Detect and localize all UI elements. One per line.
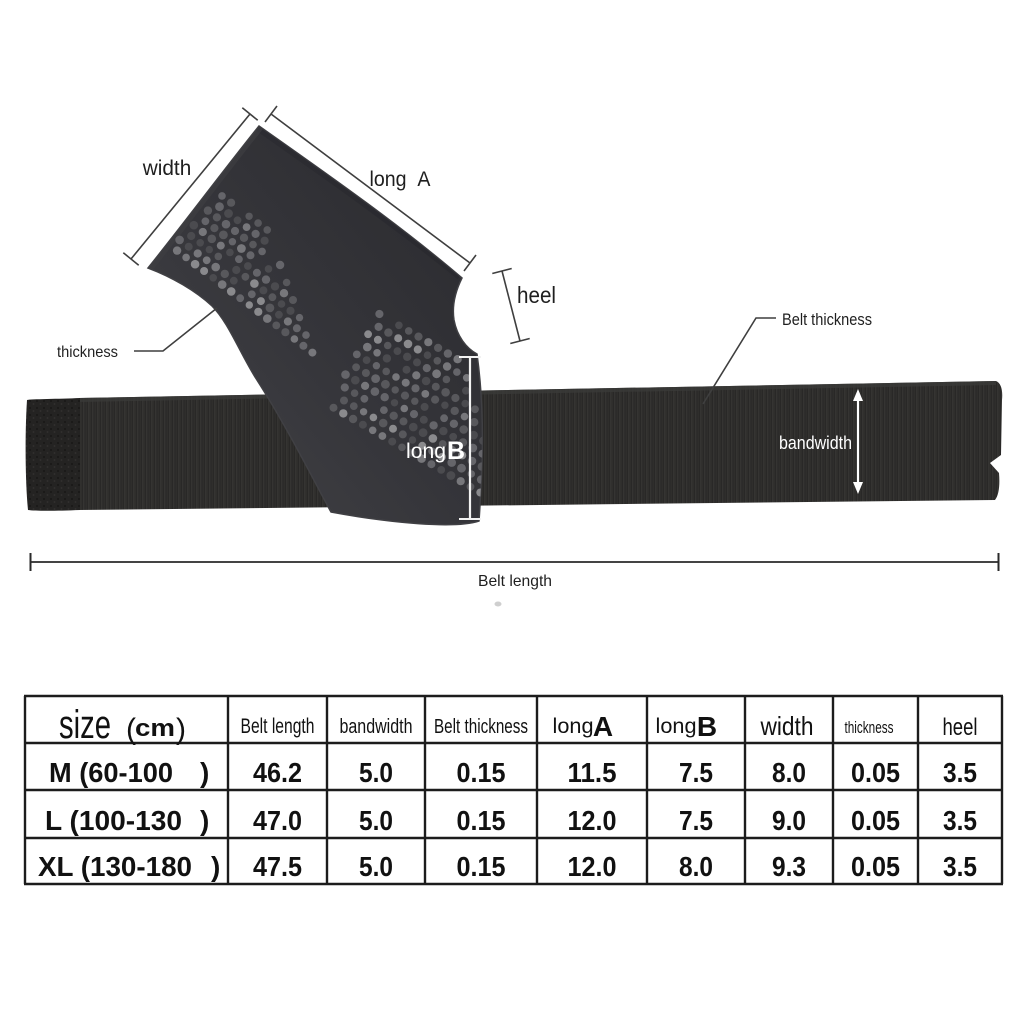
- svg-text:thickness: thickness: [845, 718, 894, 737]
- svg-text:9.3: 9.3: [772, 851, 806, 882]
- svg-text:bandwidth: bandwidth: [779, 433, 852, 453]
- svg-text:B: B: [697, 711, 717, 742]
- svg-text:3.5: 3.5: [943, 805, 977, 836]
- svg-text:0.15: 0.15: [457, 805, 506, 836]
- svg-text:0.05: 0.05: [851, 805, 900, 836]
- svg-text:heel: heel: [517, 282, 556, 308]
- svg-text:cm: cm: [135, 715, 175, 742]
- svg-text:7.5: 7.5: [679, 757, 713, 788]
- svg-text:Belt thickness: Belt thickness: [782, 310, 872, 329]
- svg-text:47.0: 47.0: [253, 805, 302, 836]
- svg-text:long: long: [656, 715, 697, 738]
- svg-text:0.05: 0.05: [851, 851, 900, 882]
- svg-text:long A: long A: [370, 168, 431, 191]
- svg-text:A: A: [593, 711, 613, 742]
- svg-text:): ): [200, 805, 209, 836]
- svg-text:long: long: [406, 440, 446, 463]
- svg-text:L (100-130: L (100-130: [45, 805, 182, 836]
- svg-text:): ): [211, 851, 220, 882]
- svg-text:47.5: 47.5: [253, 851, 302, 882]
- svg-text:5.0: 5.0: [359, 805, 393, 836]
- svg-text:Belt thickness: Belt thickness: [434, 716, 528, 738]
- svg-text:size: size: [59, 703, 111, 747]
- svg-text:long: long: [553, 715, 594, 738]
- svg-text:Belt length: Belt length: [478, 573, 552, 590]
- svg-text:3.5: 3.5: [943, 851, 977, 882]
- svg-text:9.0: 9.0: [772, 805, 806, 836]
- svg-text:bandwidth: bandwidth: [340, 716, 413, 738]
- svg-text:3.5: 3.5: [943, 757, 977, 788]
- svg-text:): ): [176, 713, 186, 746]
- svg-text:7.5: 7.5: [679, 805, 713, 836]
- svg-text:M (60-100: M (60-100: [49, 757, 173, 788]
- svg-text:): ): [200, 757, 209, 788]
- svg-text:8.0: 8.0: [772, 757, 806, 788]
- svg-text:B: B: [447, 437, 465, 465]
- svg-text:heel: heel: [943, 714, 978, 741]
- svg-text:5.0: 5.0: [359, 851, 393, 882]
- svg-text:thickness: thickness: [57, 344, 118, 361]
- svg-text:11.5: 11.5: [568, 757, 617, 788]
- svg-text:XL (130-180: XL (130-180: [38, 851, 192, 882]
- svg-text:8.0: 8.0: [679, 851, 713, 882]
- svg-text:Belt length: Belt length: [241, 715, 315, 738]
- svg-text:5.0: 5.0: [359, 757, 393, 788]
- svg-text:46.2: 46.2: [253, 757, 302, 788]
- svg-text:0.15: 0.15: [457, 757, 506, 788]
- svg-text:0.05: 0.05: [851, 757, 900, 788]
- svg-text:width: width: [142, 157, 191, 180]
- svg-text:12.0: 12.0: [568, 805, 617, 836]
- svg-text:12.0: 12.0: [568, 851, 617, 882]
- svg-text:0.15: 0.15: [457, 851, 506, 882]
- svg-text:width: width: [760, 711, 814, 741]
